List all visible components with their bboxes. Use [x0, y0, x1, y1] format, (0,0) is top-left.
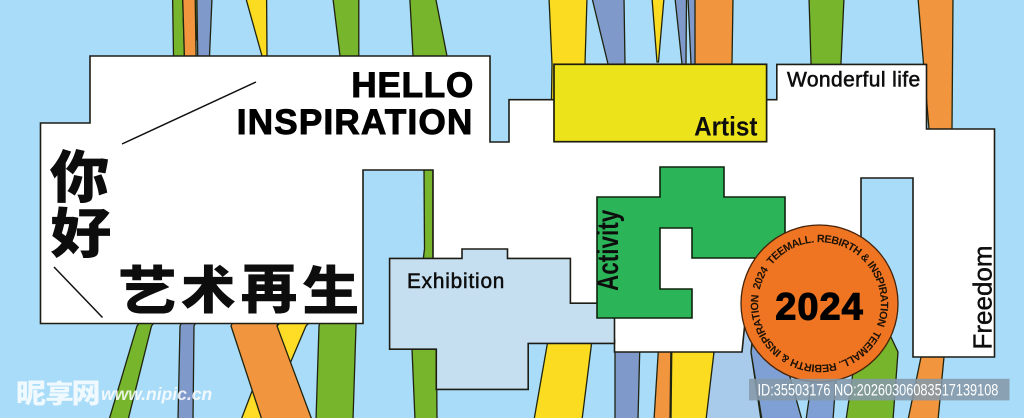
- svg-text:www.nipic.cn: www.nipic.cn: [101, 384, 212, 404]
- svg-text:2024: 2024: [775, 287, 864, 329]
- svg-text:Artist: Artist: [694, 112, 758, 141]
- svg-text:Activity: Activity: [591, 210, 625, 291]
- svg-text:Freedom: Freedom: [968, 245, 998, 349]
- svg-text:HELLO: HELLO: [351, 66, 474, 105]
- svg-text:Wonderful life: Wonderful life: [787, 69, 921, 92]
- svg-text:INSPIRATION: INSPIRATION: [237, 103, 474, 142]
- svg-text:ID:35503176 NO:202603060835171: ID:35503176 NO:20260306083517139108: [758, 381, 999, 400]
- svg-text:N: N: [749, 294, 762, 303]
- svg-text:Exhibition: Exhibition: [407, 270, 505, 293]
